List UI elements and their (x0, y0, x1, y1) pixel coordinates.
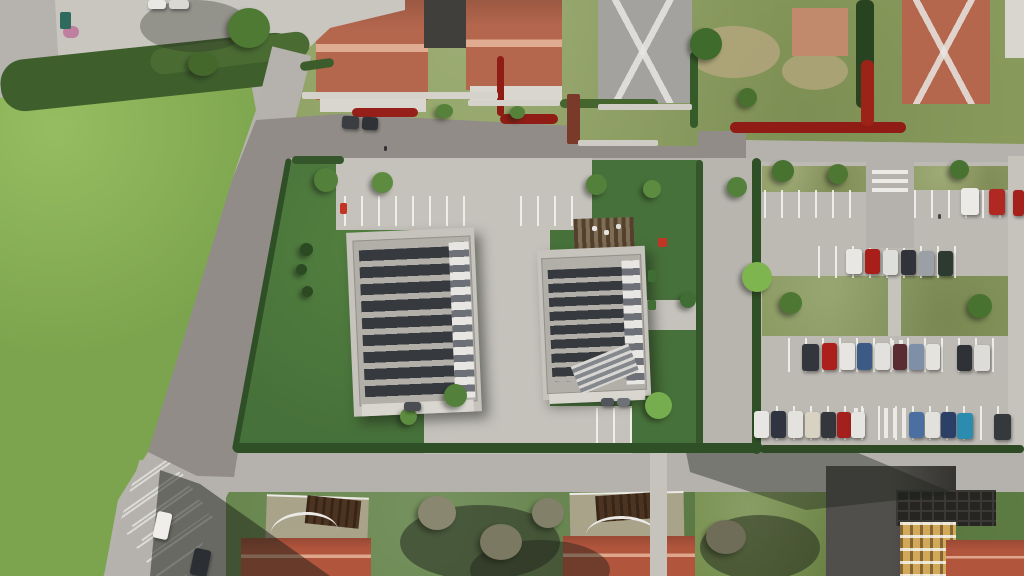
car (875, 343, 890, 370)
car (148, 0, 166, 9)
car (994, 414, 1011, 440)
van (961, 188, 979, 215)
car (851, 412, 865, 438)
car (857, 343, 872, 370)
car (938, 251, 953, 276)
car (865, 249, 880, 274)
car (893, 344, 907, 370)
car (771, 411, 786, 438)
car (989, 189, 1005, 215)
car (957, 345, 972, 371)
car (941, 412, 956, 438)
car (169, 0, 189, 9)
car (601, 398, 614, 406)
car (901, 250, 916, 275)
car (837, 412, 851, 438)
car (909, 412, 924, 438)
car (617, 398, 630, 406)
car (1013, 190, 1024, 216)
car (788, 411, 803, 438)
aerial-photo (0, 0, 1024, 576)
car (805, 412, 820, 438)
car (754, 411, 769, 438)
car (974, 345, 990, 371)
car (404, 402, 421, 411)
car (925, 412, 940, 438)
car (802, 344, 819, 371)
car (926, 344, 940, 370)
car (821, 412, 836, 438)
car (189, 548, 211, 576)
car (342, 116, 360, 130)
car (846, 249, 862, 274)
car (362, 117, 379, 131)
car (919, 251, 934, 276)
car (152, 511, 172, 541)
cars-layer (0, 0, 1024, 576)
car (840, 343, 855, 370)
car (909, 344, 924, 370)
car (883, 250, 898, 275)
car (957, 413, 973, 439)
car (822, 343, 837, 370)
